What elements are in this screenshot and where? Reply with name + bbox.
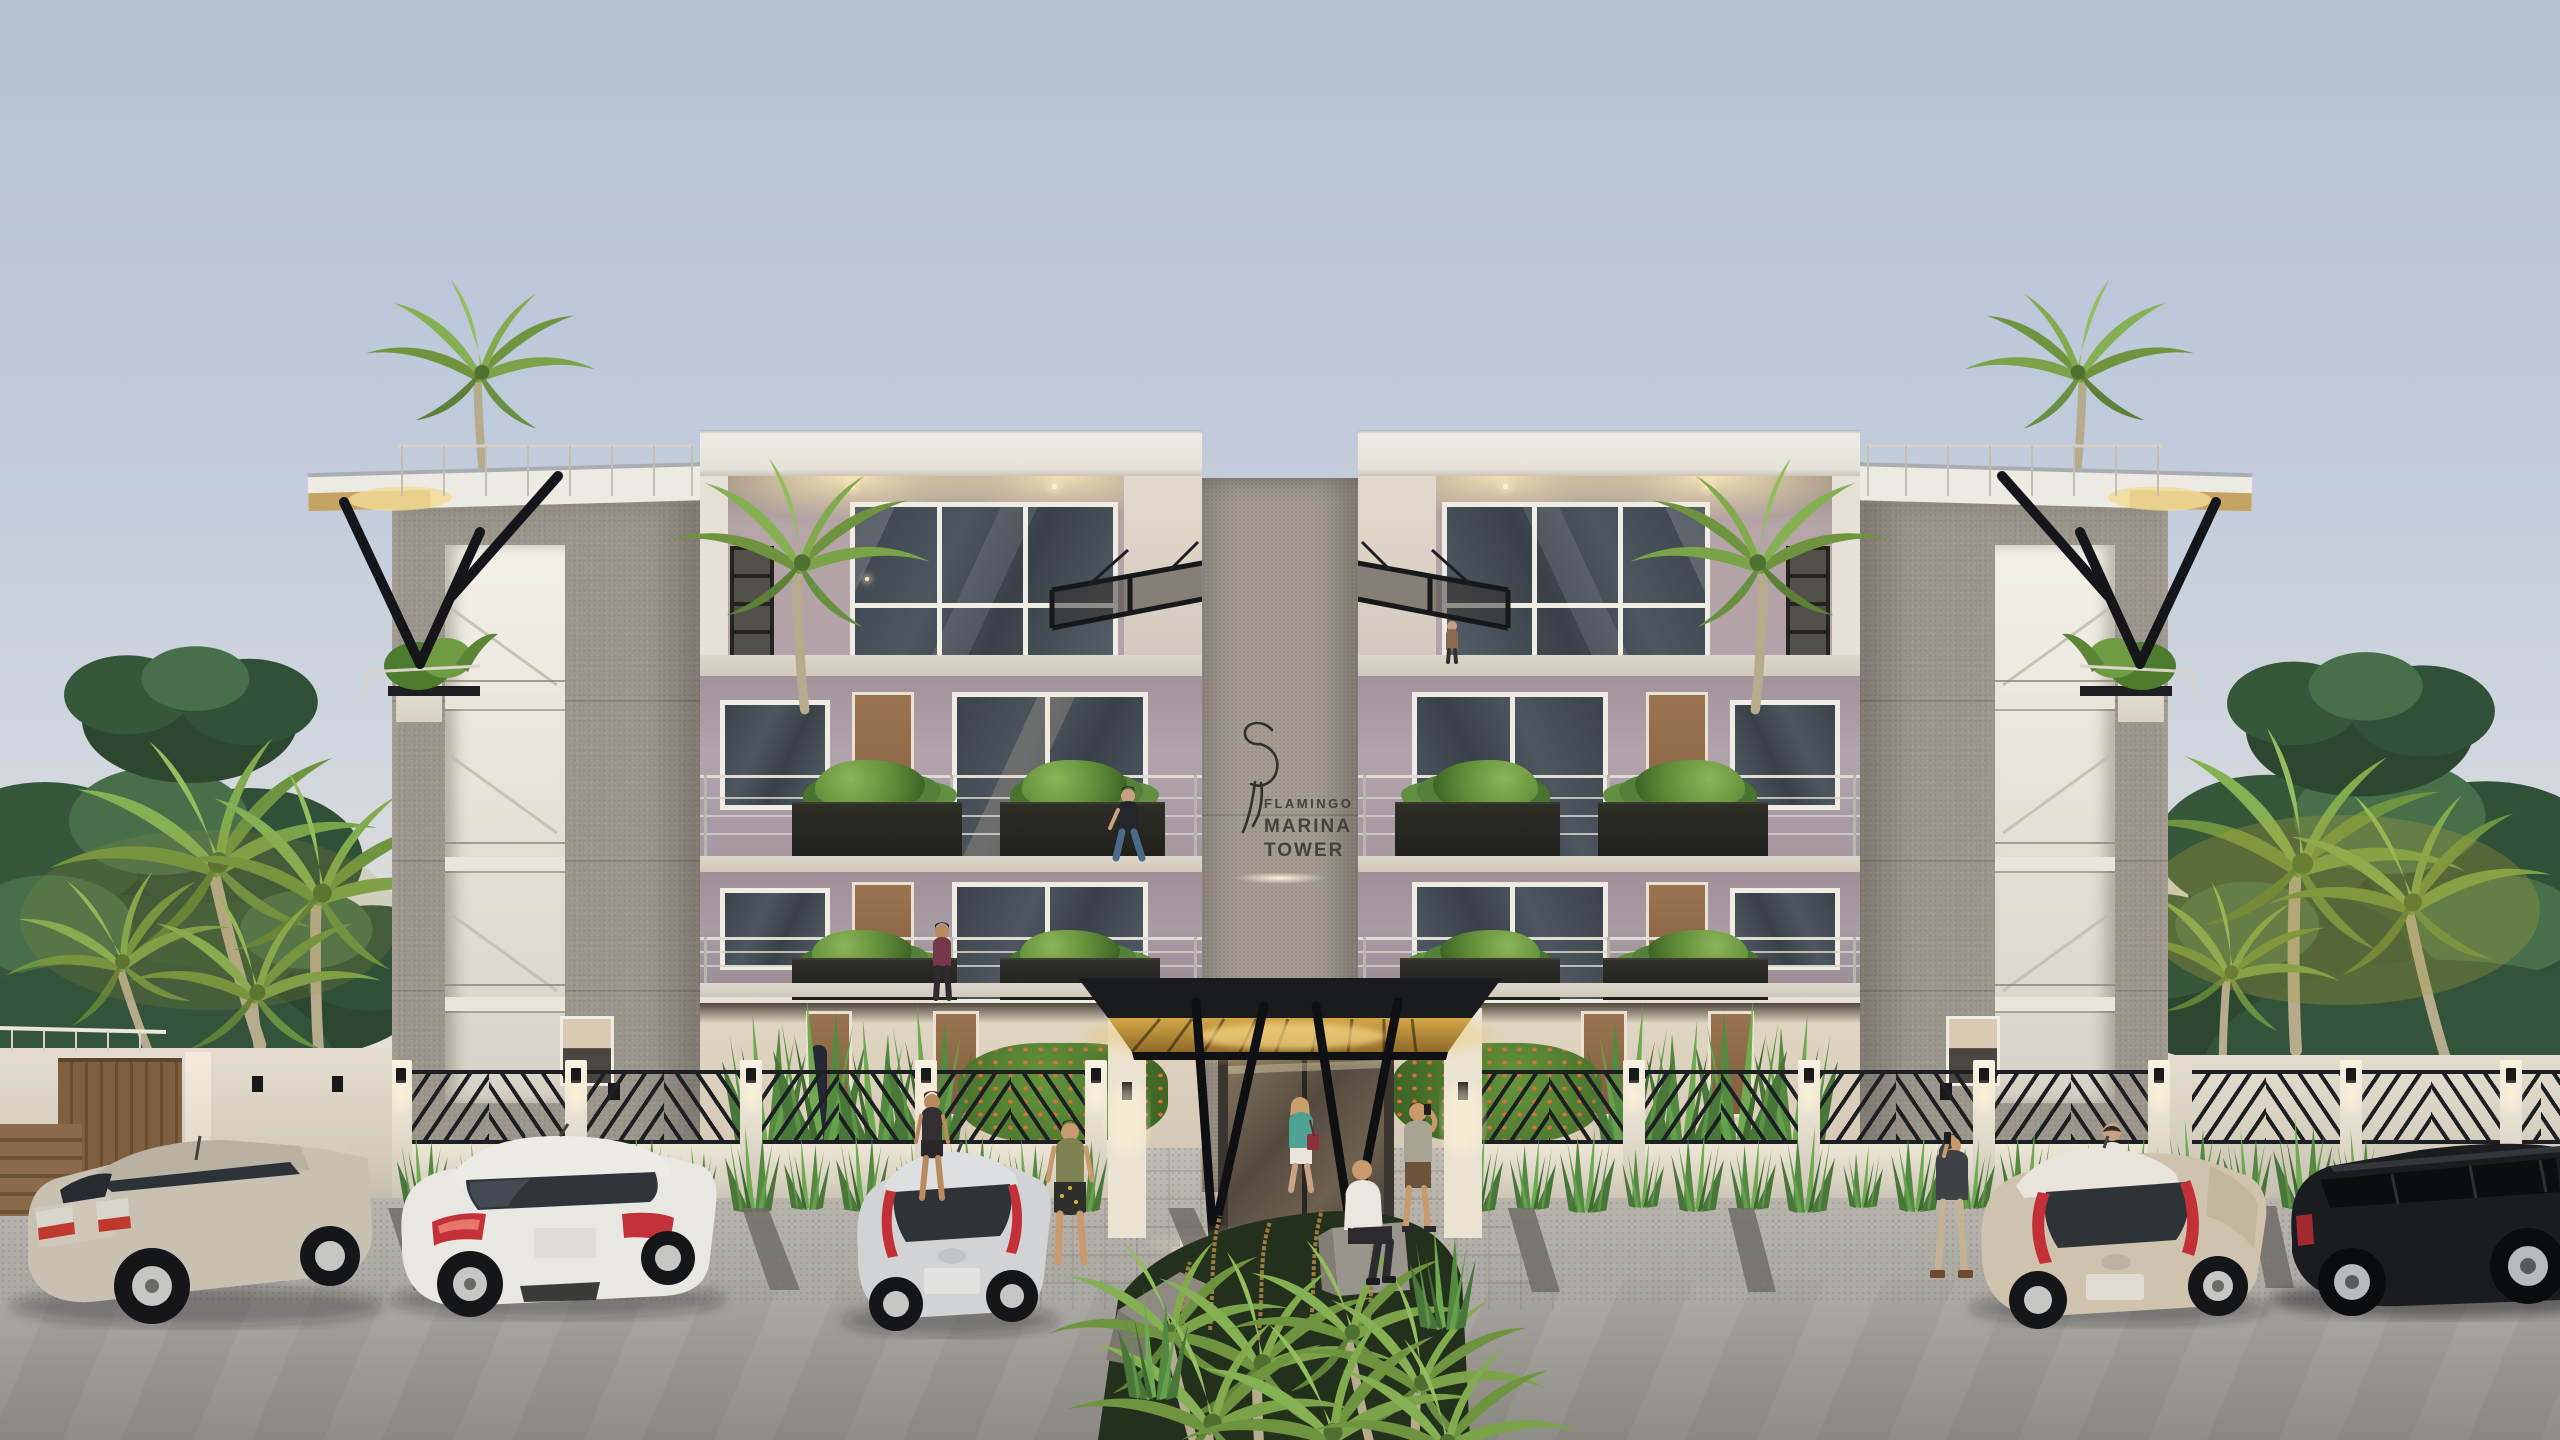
car-sedan-beige — [11, 1136, 383, 1326]
car-suv-black — [2270, 1144, 2560, 1318]
foreground-overlay: 202 302 — [0, 0, 2560, 1440]
car-hatchback-champagne — [1970, 1136, 2270, 1329]
architectural-rendering: FLAMINGO MARINA TOWER — [0, 0, 2560, 1440]
foreground-planter-bed — [1040, 1210, 1577, 1440]
person-terrace-small — [1446, 621, 1458, 662]
car-hatchback-silver — [842, 1142, 1058, 1336]
person-balcony-woman — [933, 922, 951, 998]
person-woman-teal-red-bag — [1289, 1097, 1319, 1190]
person-man-on-phone — [1930, 1132, 1973, 1278]
person-tank-top-man — [1048, 1120, 1092, 1262]
person-balcony-man — [1110, 786, 1142, 858]
car-coupe-white — [389, 1124, 725, 1318]
person-bearded-man-phone — [1402, 1103, 1436, 1232]
